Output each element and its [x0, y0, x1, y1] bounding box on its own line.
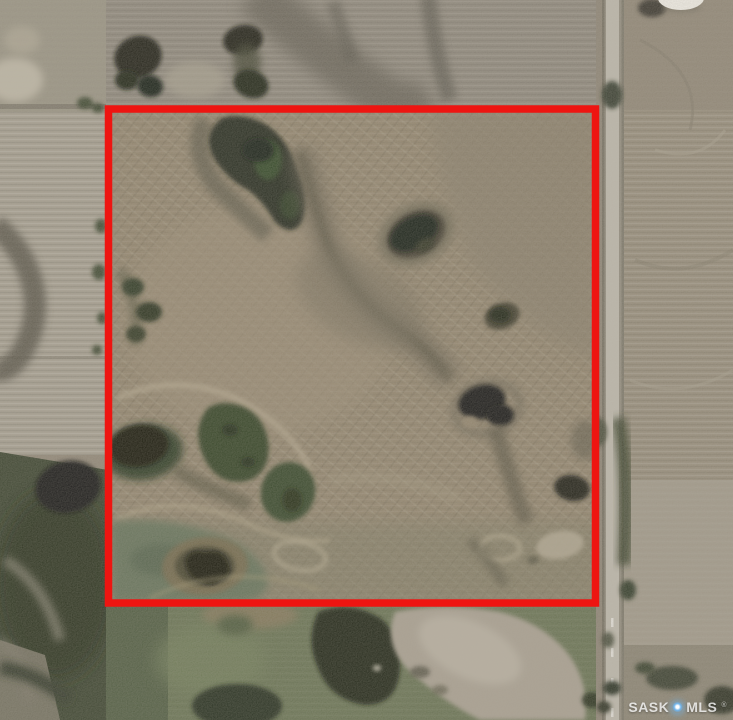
watermark-prefix: SASK [628, 699, 669, 715]
registered-mark: ® [721, 699, 727, 713]
satellite-photo [0, 0, 733, 720]
aerial-photo-viewport: SASK MLS ® [0, 0, 733, 720]
watermark-suffix: MLS [686, 699, 717, 715]
mls-diamond-icon [672, 702, 683, 713]
sask-mls-watermark: SASK MLS ® [628, 699, 727, 715]
